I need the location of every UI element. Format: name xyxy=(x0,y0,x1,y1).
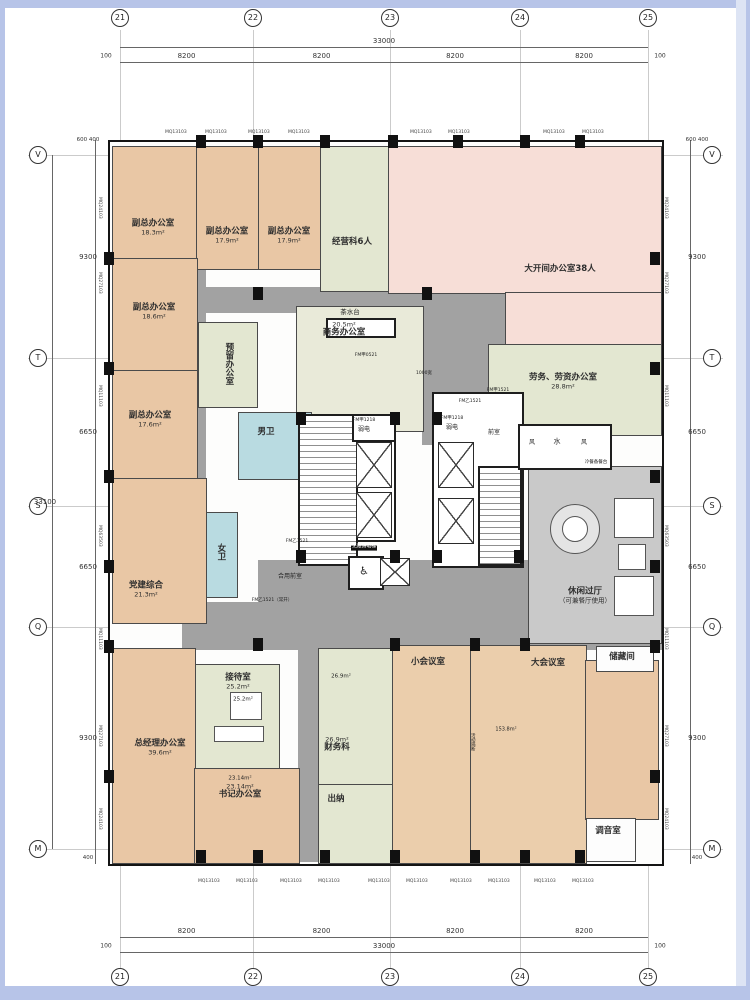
room-label: 党建综合21.3m² xyxy=(129,581,163,598)
column xyxy=(320,135,330,148)
column xyxy=(390,412,400,425)
room xyxy=(318,648,394,786)
annotation: 弱电 xyxy=(358,427,370,433)
wall-code: MQ11103 xyxy=(663,385,668,407)
elevator-icon xyxy=(356,442,392,488)
dim-line xyxy=(690,140,691,864)
room-name: 男卫 xyxy=(257,427,274,437)
dim-text: 100 xyxy=(100,943,111,950)
room-name: 副总办公室 xyxy=(129,410,172,420)
wall-code: MQ27103 xyxy=(97,725,102,747)
room-name: 女卫 xyxy=(216,544,226,561)
grid-bubble: 23 xyxy=(381,9,399,27)
annotation: 活动隔断 xyxy=(470,733,475,751)
annotation: 前室 xyxy=(488,430,500,436)
dim-text: 6650 xyxy=(688,428,706,436)
elevator-icon xyxy=(438,442,474,488)
room xyxy=(585,660,659,820)
wall-code: MQ13103 xyxy=(582,130,604,135)
dim-line xyxy=(120,62,648,63)
column xyxy=(520,135,530,148)
room-name: 副总办公室 xyxy=(133,302,176,312)
annotation: 茶水台 xyxy=(340,309,360,316)
room-label: 大开间办公室38人 xyxy=(524,265,595,275)
grid-bubble: V xyxy=(29,146,47,164)
annotation: FM甲0521 xyxy=(355,354,377,359)
dim-text: 6650 xyxy=(79,563,97,571)
room xyxy=(392,645,472,864)
dim-text: 100 xyxy=(654,53,665,60)
annotation: 冷餐备餐台 xyxy=(585,461,608,466)
column xyxy=(253,135,263,148)
wall-code: MQ13103 xyxy=(236,879,258,884)
room-name: 副总办公室 xyxy=(268,226,311,236)
wall-code: MQ24103 xyxy=(97,197,102,219)
dim-text: 8200 xyxy=(446,52,464,60)
wheelchair-icon: ♿ xyxy=(359,566,369,577)
room-name: 调音室 xyxy=(595,826,621,836)
column xyxy=(253,850,263,863)
grid-bubble: Q xyxy=(703,618,721,636)
grid-bubble: Q xyxy=(29,618,47,636)
column xyxy=(470,850,480,863)
dim-text: 33000 xyxy=(373,37,395,45)
column xyxy=(196,135,206,148)
room-label: 副总办公室17.6m² xyxy=(129,411,172,428)
column xyxy=(650,252,660,265)
grid-bubble: 21 xyxy=(111,968,129,986)
room-area: 18.6m² xyxy=(133,313,176,320)
dim-text: 33100 xyxy=(34,498,56,506)
room-name: 大开间办公室38人 xyxy=(524,264,595,274)
dim-text: 400 xyxy=(692,855,703,861)
annotation: 风 xyxy=(529,440,535,446)
wall-code: MQ13103 xyxy=(198,879,220,884)
annotation: FM乙1521（常开） xyxy=(252,599,292,604)
wall-code: MQ63503 xyxy=(663,525,668,547)
column xyxy=(650,470,660,483)
room-name: 小会议室 xyxy=(411,657,445,667)
column xyxy=(575,850,585,863)
elevator-icon xyxy=(356,492,392,538)
grid-bubble: 24 xyxy=(511,9,529,27)
dim-text: 100 xyxy=(100,53,111,60)
wall-code: MQ27103 xyxy=(663,725,668,747)
dim-text: 8200 xyxy=(575,927,593,935)
wall-code: MQ27103 xyxy=(97,272,102,294)
frame-band-left xyxy=(0,0,5,1000)
dim-text: 600 400 xyxy=(77,137,100,143)
dim-line xyxy=(120,952,648,953)
annotation: 26.9m² xyxy=(331,674,351,680)
dim-text: 9300 xyxy=(688,734,706,742)
wall-code: MQ24103 xyxy=(663,808,668,830)
grid-bubble: T xyxy=(703,349,721,367)
room xyxy=(505,292,662,346)
annotation: FM乙1521 xyxy=(459,400,481,405)
column xyxy=(104,252,114,265)
grid-bubble: M xyxy=(703,840,721,858)
annotation: 25.2m² xyxy=(233,697,253,703)
room-name: 商务办公室 xyxy=(323,328,366,338)
wall-code: MQ13103 xyxy=(448,130,470,135)
wall-code: MQ24103 xyxy=(663,197,668,219)
column xyxy=(520,850,530,863)
grid-bubble: M xyxy=(29,840,47,858)
dim-text: 100 xyxy=(654,943,665,950)
room xyxy=(470,645,587,864)
room-name: 经营科6人 xyxy=(332,237,372,247)
room-name: 书记办公室 xyxy=(219,790,262,800)
room-label: 女卫 xyxy=(215,544,225,561)
room xyxy=(196,146,260,270)
annotation: 无障碍电梯 xyxy=(351,546,377,551)
column xyxy=(650,640,660,653)
room-label: 出纳 xyxy=(327,795,344,805)
grid-bubble: S xyxy=(703,497,721,515)
annotation: 23.14m² xyxy=(228,776,251,782)
room-label: 23.14m²书记办公室 xyxy=(219,783,262,800)
annotation: 1000宽 xyxy=(416,372,432,377)
grid-bubble: 25 xyxy=(639,9,657,27)
dim-text: 8200 xyxy=(575,52,593,60)
room-label: 休闲过厅（可兼餐厅使用） xyxy=(559,587,611,604)
wall-code: MQ13103 xyxy=(288,130,310,135)
room-name: 劳务、劳资办公室 xyxy=(529,372,597,382)
room xyxy=(112,146,198,260)
dim-text: 9300 xyxy=(688,253,706,261)
room-name: 副总办公室 xyxy=(132,218,175,228)
wall-code: MQ24103 xyxy=(97,808,102,830)
column xyxy=(253,638,263,651)
grid-bubble: 21 xyxy=(111,9,129,27)
wall-code: MQ13103 xyxy=(488,879,510,884)
room-label: 副总办公室18.3m² xyxy=(132,219,175,236)
wall-code: MQ13103 xyxy=(572,879,594,884)
room-area: 17.6m² xyxy=(129,421,172,428)
room-area: 28.8m² xyxy=(529,383,597,390)
column xyxy=(650,770,660,783)
room-label: 预留办公室 xyxy=(223,343,233,386)
column xyxy=(104,362,114,375)
annotation: FM乙1521 xyxy=(286,540,308,545)
dim-text: 6650 xyxy=(79,428,97,436)
wall-code: MQ27103 xyxy=(663,272,668,294)
room xyxy=(258,146,322,270)
wall-code: MQ13103 xyxy=(205,130,227,135)
room-name: 总经理办公室 xyxy=(134,738,185,748)
wall-code: MQ13103 xyxy=(534,879,556,884)
wall-code: MQ13103 xyxy=(248,130,270,135)
room-label: 副总办公室18.6m² xyxy=(133,303,176,320)
floor-plan-canvas: 副总办公室18.3m²副总办公室17.9m²副总办公室17.9m²经营科6人大开… xyxy=(0,0,750,1000)
grid-bubble: V xyxy=(703,146,721,164)
room xyxy=(586,818,636,862)
dim-text: 6650 xyxy=(688,563,706,571)
column xyxy=(432,550,442,563)
room-label: 储藏间 xyxy=(609,653,635,663)
room-area: 25.2m² xyxy=(225,683,251,690)
dim-text: 8200 xyxy=(313,927,331,935)
grid-bubble: 23 xyxy=(381,968,399,986)
frame-band-top xyxy=(0,0,750,8)
sofa xyxy=(614,498,654,538)
room-label: 经营科6人 xyxy=(332,238,372,248)
sofa xyxy=(214,726,264,742)
column xyxy=(296,550,306,563)
room-name: 大会议室 xyxy=(531,658,565,668)
column xyxy=(390,550,400,563)
dim-text: 9300 xyxy=(79,734,97,742)
room-name: 财务科 xyxy=(324,743,350,753)
room-name: 副总办公室 xyxy=(206,226,249,236)
room-label: 小会议室 xyxy=(411,658,445,668)
dim-line xyxy=(120,937,648,938)
room-name: 党建综合 xyxy=(129,580,163,590)
column xyxy=(296,412,306,425)
column xyxy=(520,638,530,651)
room-area: 17.9m² xyxy=(206,237,249,244)
wall-code: MQ63503 xyxy=(97,525,102,547)
wall-code: MQ13103 xyxy=(450,879,472,884)
annotation: 153.8m² xyxy=(495,728,516,733)
column xyxy=(104,770,114,783)
column xyxy=(514,550,524,563)
dim-text: 600 400 xyxy=(686,137,709,143)
room-area: 17.9m² xyxy=(268,237,311,244)
room-label: 调音室 xyxy=(595,827,621,837)
corridor xyxy=(298,602,318,862)
frame-band-bottom xyxy=(0,986,750,1000)
room-label: 副总办公室17.9m² xyxy=(206,227,249,244)
annotation: FM甲1218 xyxy=(441,417,463,422)
room-name: 休闲过厅 xyxy=(568,586,602,596)
column xyxy=(320,850,330,863)
grid-bubble: 22 xyxy=(244,968,262,986)
column xyxy=(104,470,114,483)
annotation: 风 xyxy=(581,440,587,446)
column xyxy=(470,638,480,651)
annotation: 水 xyxy=(554,439,561,446)
annotation: FM甲1218 xyxy=(353,419,375,424)
sofa xyxy=(618,544,646,570)
wall-code: MQ13103 xyxy=(410,130,432,135)
annotation: 合用前室 xyxy=(278,574,302,580)
wall-code: MQ13103 xyxy=(406,879,428,884)
grid-bubble: 25 xyxy=(639,968,657,986)
dim-line xyxy=(95,140,96,864)
dim-text: 8200 xyxy=(446,927,464,935)
wall-code: MQ13103 xyxy=(280,879,302,884)
room-label: 26.9m²财务科 xyxy=(324,736,350,753)
wall-code: MQ11103 xyxy=(97,385,102,407)
dim-text: 33000 xyxy=(373,942,395,950)
column xyxy=(650,560,660,573)
column xyxy=(253,287,263,300)
room-name: 预留办公室 xyxy=(224,343,234,386)
room-label: 接待室25.2m² xyxy=(225,673,251,690)
column xyxy=(104,640,114,653)
column xyxy=(388,135,398,148)
room-label: 劳务、劳资办公室28.8m² xyxy=(529,373,597,390)
room-name: 储藏间 xyxy=(609,652,635,662)
room xyxy=(320,146,390,292)
column xyxy=(422,287,432,300)
room xyxy=(112,478,207,624)
dim-text: 8200 xyxy=(178,927,196,935)
dim-text: 8200 xyxy=(313,52,331,60)
room-area: 18.3m² xyxy=(132,229,175,236)
room-label: 副总办公室17.9m² xyxy=(268,227,311,244)
room-label: 大会议室 xyxy=(531,659,565,669)
column xyxy=(650,362,660,375)
room-area: 21.3m² xyxy=(129,591,163,598)
wall-code: MQ13103 xyxy=(543,130,565,135)
wall-code: MQ11103 xyxy=(663,628,668,650)
room-label: 男卫 xyxy=(257,428,274,438)
wall-code: MQ13103 xyxy=(318,879,340,884)
grid-bubble: T xyxy=(29,349,47,367)
column xyxy=(196,850,206,863)
grid-bubble: 22 xyxy=(244,9,262,27)
grid-bubble: 24 xyxy=(511,968,529,986)
dim-text: 8200 xyxy=(178,52,196,60)
room-name: 接待室 xyxy=(225,672,251,682)
wall-code: MQ11103 xyxy=(97,628,102,650)
column xyxy=(390,850,400,863)
column xyxy=(390,638,400,651)
dim-text: 400 xyxy=(83,855,94,861)
annotation: 弱电 xyxy=(446,425,458,431)
column xyxy=(104,560,114,573)
room-area: （可兼餐厅使用） xyxy=(559,597,611,604)
column xyxy=(453,135,463,148)
room-label: 20.5m²商务办公室 xyxy=(323,321,366,338)
room-label: 总经理办公室39.6m² xyxy=(134,739,185,756)
wall-code: MQ13103 xyxy=(368,879,390,884)
room-name: 出纳 xyxy=(327,794,344,804)
dim-text: 9300 xyxy=(79,253,97,261)
frame-band-right-edge xyxy=(746,0,750,1000)
elevator-icon xyxy=(438,498,474,544)
dim-line xyxy=(120,47,648,48)
annotation: FM甲1521 xyxy=(487,389,509,394)
room-area: 39.6m² xyxy=(134,749,185,756)
wall-code: MQ13103 xyxy=(165,130,187,135)
column xyxy=(575,135,585,148)
sofa xyxy=(614,576,654,616)
round-table-top xyxy=(562,516,588,542)
